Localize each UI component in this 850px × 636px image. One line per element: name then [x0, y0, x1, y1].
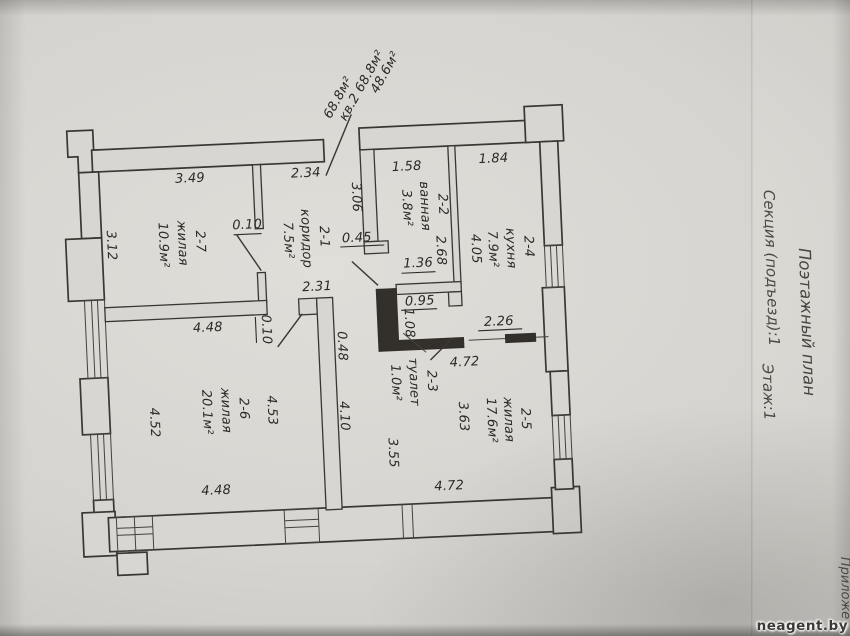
dim-toilet-height: 1.08	[401, 308, 417, 338]
room-2-5-name: жилая	[500, 396, 517, 443]
dim-room26-right: 4.53	[263, 395, 279, 425]
dim-room27-left: 3.12	[103, 230, 119, 260]
room-2-4-label: 2-4 кухня 7.9м²	[484, 227, 537, 270]
dim-room26-bottom: 4.48	[201, 483, 231, 499]
dim-closet: 1.36	[403, 255, 433, 271]
dim-room25-right: 3.63	[455, 401, 471, 431]
dim-door27: 0.10	[232, 217, 262, 233]
room-2-6-code: 2-6	[235, 397, 251, 420]
dim-door26: 0.10	[258, 314, 274, 344]
dim-room25-top: 4.72	[449, 354, 479, 370]
room-2-6-area: 20.1м²	[198, 389, 215, 435]
room-2-1-name: коридор	[297, 209, 315, 269]
room-2-5-area: 17.6м²	[483, 397, 500, 443]
apartment-annotations: 48.6м² кв.2 68.8м² 68.8м²	[318, 47, 406, 125]
room-2-4-area: 7.9м²	[484, 230, 501, 267]
dim-corridor-top: 2.34	[291, 165, 321, 181]
dim-corridor-height: 3.06	[348, 182, 364, 212]
dim-bath-top: 1.58	[391, 159, 421, 175]
dim-room27-top: 3.49	[175, 171, 205, 187]
dim-kitchen-top: 1.84	[478, 151, 508, 167]
room-2-4-name: кухня	[502, 228, 519, 269]
section-caption: Секция (подъезд):1	[760, 190, 783, 347]
room-2-3-area: 1.0м²	[387, 364, 404, 401]
room-2-7-name: жилая	[173, 219, 190, 266]
room-2-3-label: 2-3 туалет 1.0м²	[387, 357, 440, 408]
room-2-2-area: 3.8м²	[398, 189, 415, 226]
room-2-1-label: 2-1 коридор 7.5м²	[279, 208, 333, 269]
dim-corridor-width: 2.31	[302, 279, 332, 295]
room-2-1-code: 2-1	[316, 225, 332, 248]
room-2-6-label: 2-6 жилая 20.1м²	[198, 386, 252, 436]
dim-room26-left: 4.52	[146, 407, 162, 437]
room-2-5-label: 2-5 жилая 17.6м²	[483, 395, 534, 443]
dim-room25-left: 4.10	[336, 401, 352, 431]
floor-plan-drawing: 3.49 2.34 1.58 1.84 0.10 0.45 1.36 0.95 …	[58, 40, 583, 577]
attachment-caption: Приложе	[837, 557, 850, 620]
room-2-7-label: 2-7 жилая 10.9м²	[154, 218, 208, 268]
room-2-5-code: 2-5	[517, 408, 533, 431]
dim-room27-bottom: 4.48	[193, 320, 223, 336]
room-2-3-name: туалет	[405, 357, 422, 406]
room-2-2-code: 2-2	[434, 193, 450, 216]
room-2-3-code: 2-3	[423, 370, 439, 393]
room-2-7-code: 2-7	[192, 230, 208, 253]
dim-room25-bottom: 4.72	[434, 478, 464, 494]
plan-title: Поэтажный план	[795, 248, 819, 397]
room-2-7-area: 10.9м²	[154, 222, 171, 268]
room-2-1-area: 7.5м²	[280, 222, 297, 259]
room-2-2-label: 2-2 ванная 3.8м²	[398, 180, 451, 232]
dim-bath-height: 2.68	[432, 235, 448, 265]
dim-room25-mid: 3.55	[384, 438, 400, 468]
room-2-2-name: ванная	[416, 181, 433, 231]
room-2-6-name: жилая	[217, 386, 234, 433]
floor-caption: Этаж:1	[758, 362, 778, 420]
dim-room25-stub: 0.48	[334, 331, 350, 361]
watermark: neagent.by	[757, 618, 848, 634]
dim-kitchen-height: 4.05	[467, 234, 483, 264]
floor-plan-svg: 3.49 2.34 1.58 1.84 0.10 0.45 1.36 0.95 …	[0, 0, 850, 636]
floor-plan-photo: 3.49 2.34 1.58 1.84 0.10 0.45 1.36 0.95 …	[0, 0, 850, 636]
margin-captions: Поэтажный план Секция (подъезд):1 Этаж:1…	[758, 190, 850, 620]
room-2-4-code: 2-4	[520, 235, 536, 258]
dim-kitchen-opening: 2.26	[484, 314, 514, 330]
dim-niche: 0.45	[342, 230, 372, 246]
